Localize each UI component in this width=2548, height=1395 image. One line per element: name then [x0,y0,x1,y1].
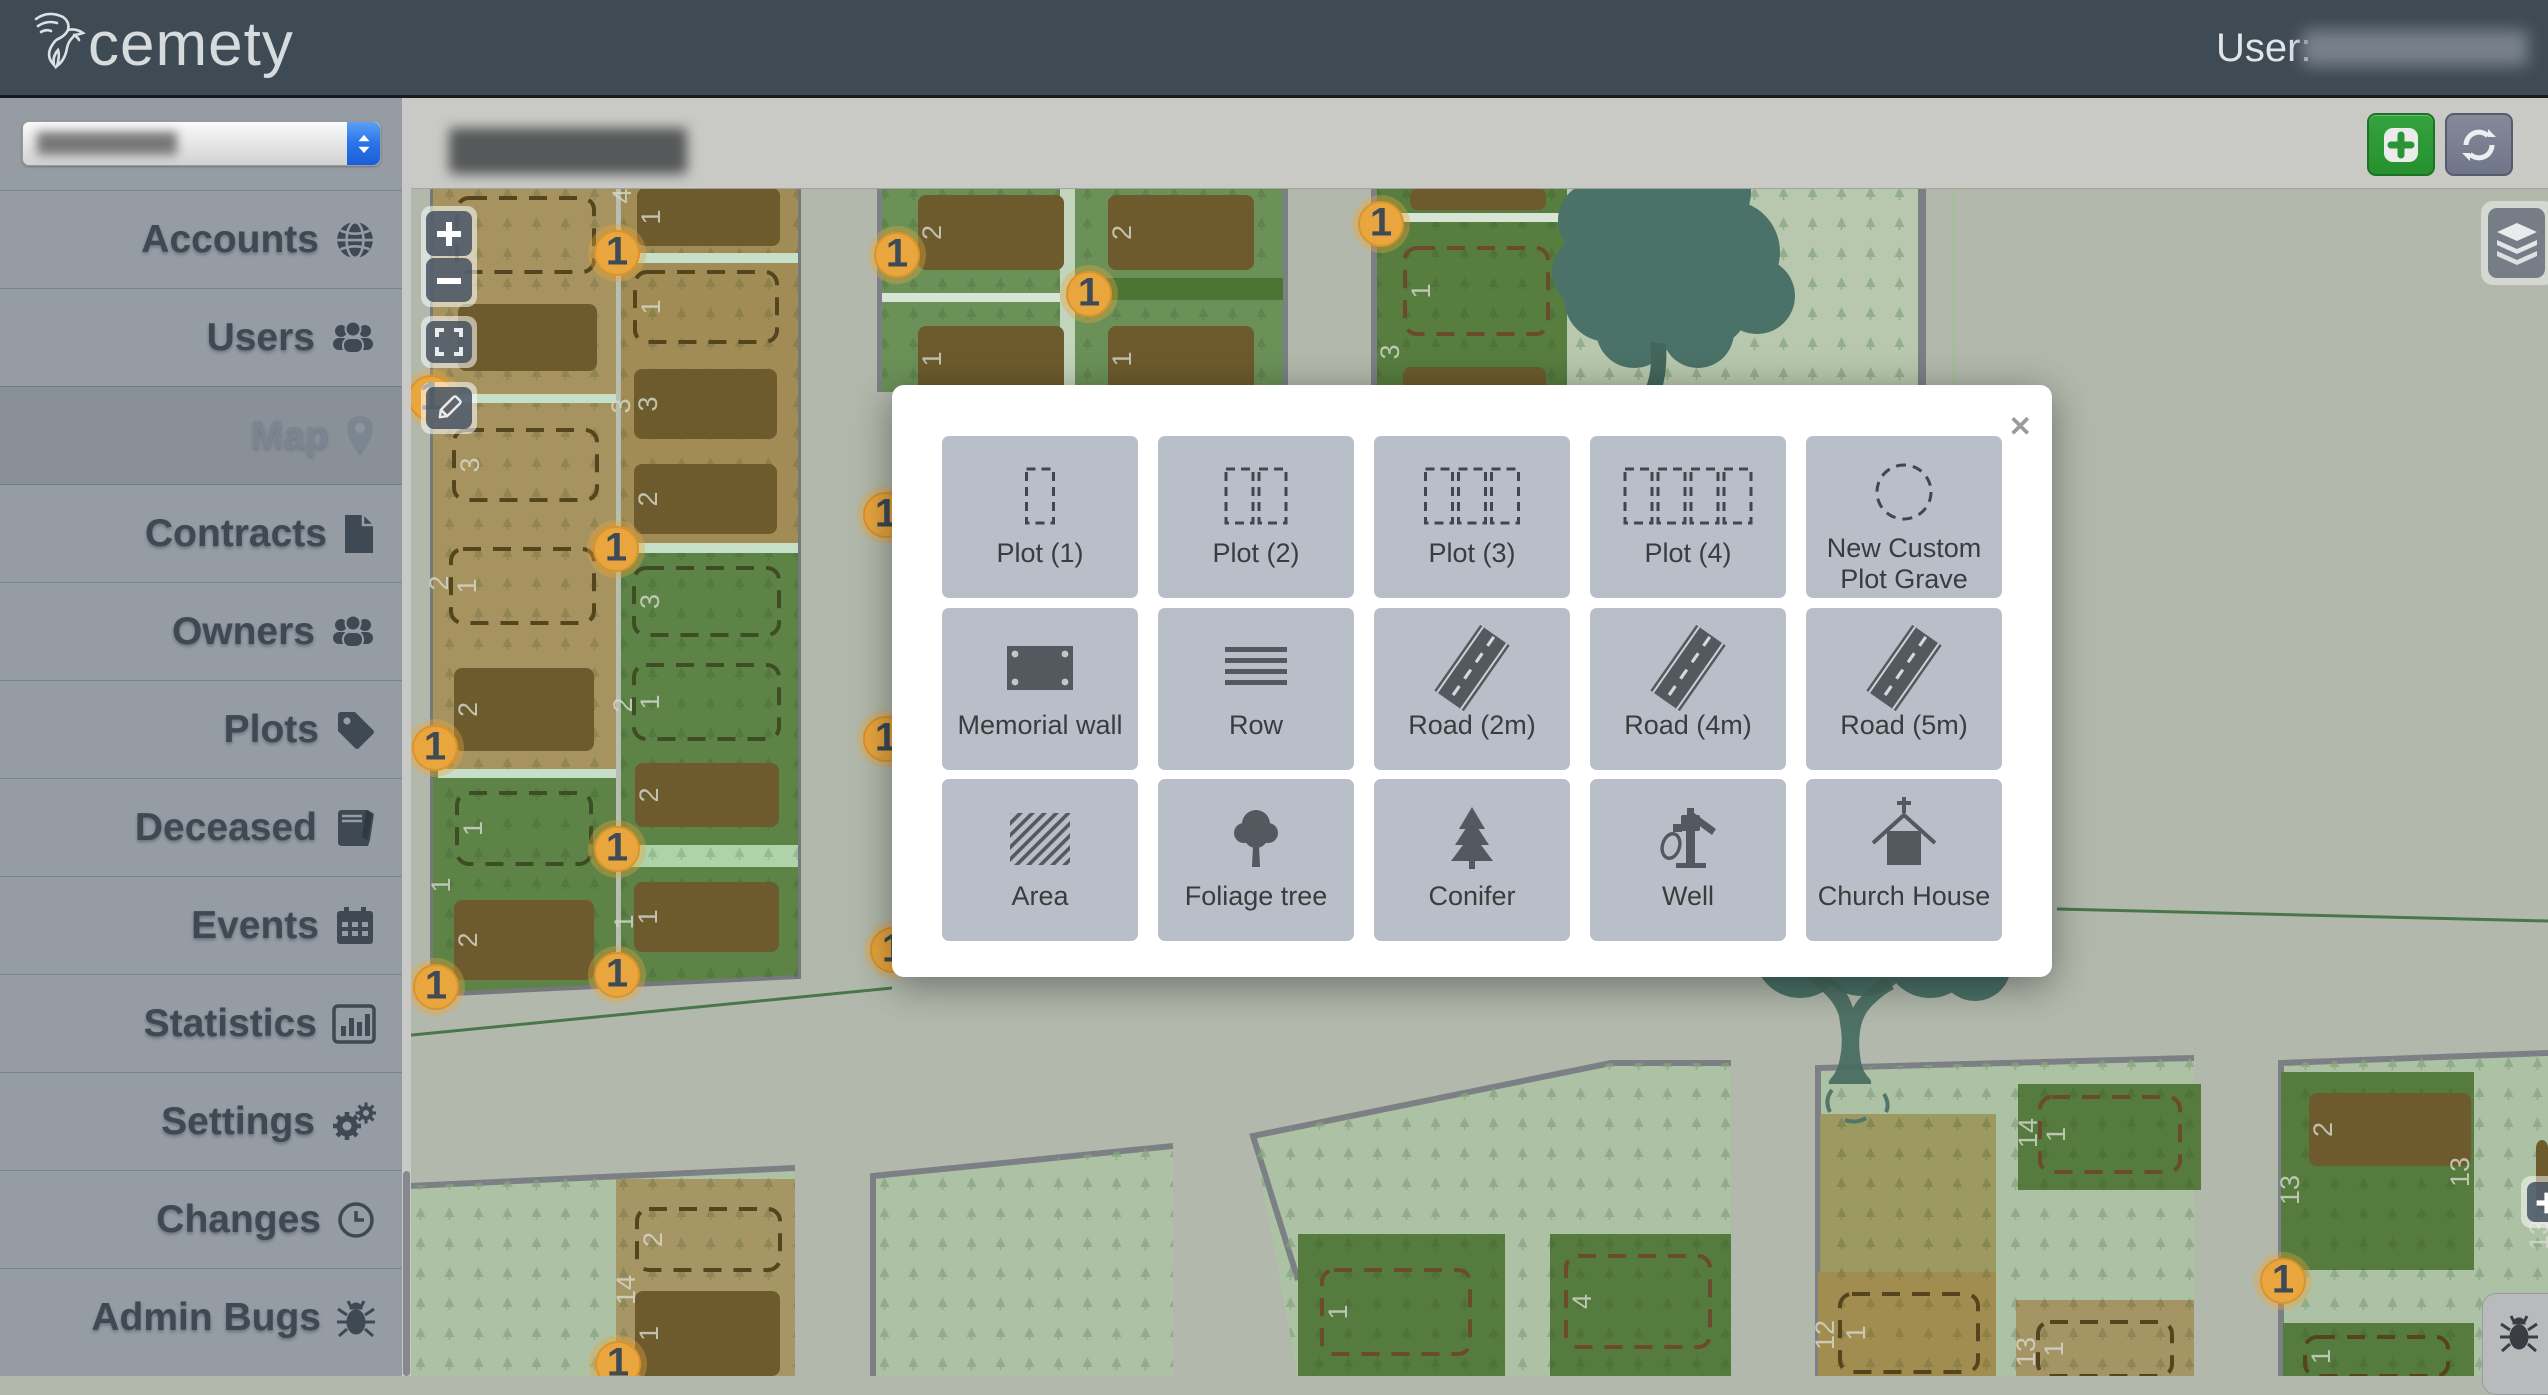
svg-text:3: 3 [635,594,665,609]
svg-text:1: 1 [1107,351,1137,366]
svg-text:2: 2 [453,932,483,947]
svg-text:1: 1 [2306,1349,2336,1364]
svg-text:1: 1 [609,914,639,929]
svg-text:3: 3 [633,396,663,411]
svg-text:1: 1 [636,209,666,224]
svg-text:1: 1 [917,351,947,366]
svg-text:13: 13 [2445,1157,2475,1187]
svg-text:13: 13 [2011,1337,2041,1367]
svg-text:1: 1 [606,826,628,870]
svg-text:1: 1 [886,232,908,276]
svg-text:3: 3 [606,398,636,413]
svg-text:1: 1 [1406,283,1436,298]
svg-text:1: 1 [1323,1304,1353,1319]
svg-text:4: 4 [1567,1294,1597,1309]
svg-text:1: 1 [606,230,628,274]
svg-text:2: 2 [608,697,638,712]
svg-text:1: 1 [634,1326,664,1341]
svg-text:1: 1 [2272,1258,2294,1302]
svg-text:1: 1 [636,299,666,314]
svg-text:12: 12 [1810,1320,1840,1350]
svg-text:13: 13 [2275,1175,2305,1205]
svg-text:3: 3 [455,457,485,472]
svg-text:4: 4 [607,188,637,203]
svg-text:2: 2 [917,225,947,240]
svg-text:1: 1 [1078,271,1100,315]
svg-text:2: 2 [424,575,454,590]
svg-text:2: 2 [638,1232,668,1247]
svg-text:1: 1 [2041,1127,2071,1142]
svg-text:2: 2 [633,491,663,506]
svg-text:1: 1 [607,1341,629,1376]
svg-text:1: 1 [635,694,665,709]
svg-text:1: 1 [606,952,628,996]
svg-text:2: 2 [2308,1122,2338,1137]
svg-text:3: 3 [1375,344,1405,359]
svg-text:1: 1 [605,526,627,570]
svg-text:1: 1 [424,725,446,769]
svg-text:1: 1 [1370,201,1392,245]
svg-text:2: 2 [1107,225,1137,240]
svg-text:2: 2 [634,787,664,802]
svg-text:1: 1 [2039,1341,2069,1356]
svg-text:14: 14 [2013,1118,2043,1148]
svg-text:1: 1 [1841,1325,1871,1340]
svg-text:1: 1 [426,877,456,892]
svg-text:1: 1 [458,821,488,836]
svg-text:1: 1 [452,578,482,593]
svg-text:1: 1 [425,964,447,1008]
svg-text:2: 2 [453,702,483,717]
